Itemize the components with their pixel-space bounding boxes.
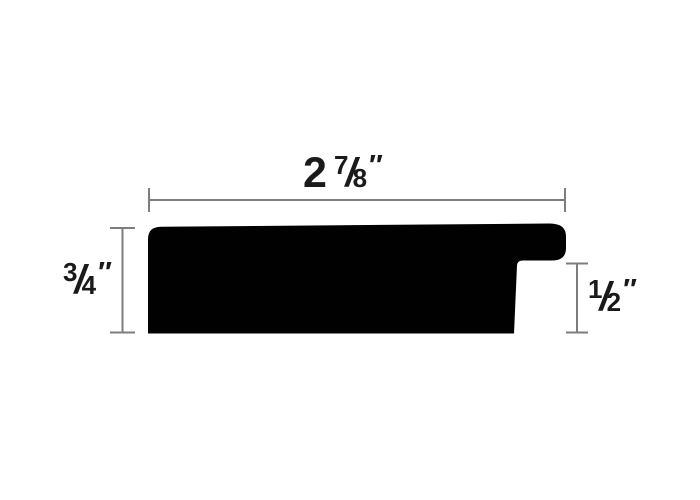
height-dimension-line [110, 228, 135, 333]
width-whole-number: 2 [303, 149, 327, 197]
rabbet-dimension-label: 1/2″ [588, 276, 637, 317]
diagram-canvas: 27/8″ 3/4″ 1/2″ [0, 0, 700, 500]
height-inch-mark: ″ [98, 257, 112, 289]
rabbet-inch-mark: ″ [623, 274, 637, 306]
height-fraction-denominator: 4 [82, 270, 96, 300]
profile-diagram-svg [0, 0, 700, 500]
rabbet-dimension-line [566, 264, 588, 333]
rabbet-fraction-denominator: 2 [607, 287, 621, 317]
height-dimension-label: 3/4″ [63, 259, 112, 300]
width-dimension-label: 27/8″ [303, 152, 383, 195]
width-inch-mark: ″ [369, 150, 383, 182]
moulding-profile-shape [148, 223, 566, 333]
width-fraction-denominator: 8 [353, 163, 367, 193]
